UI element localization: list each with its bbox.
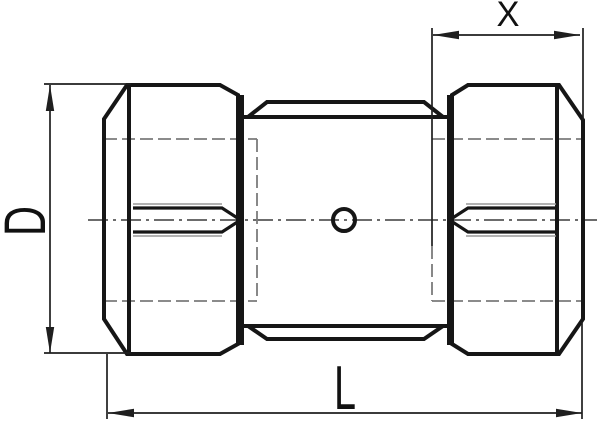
- coupling-drawing-canvas: D L X: [0, 0, 600, 422]
- dim-x-label: X: [497, 0, 520, 34]
- drawing-background: [0, 0, 600, 422]
- dim-l-label: L: [334, 354, 356, 422]
- dim-d-label: D: [0, 206, 58, 236]
- technical-drawing-page: D L X: [0, 0, 600, 422]
